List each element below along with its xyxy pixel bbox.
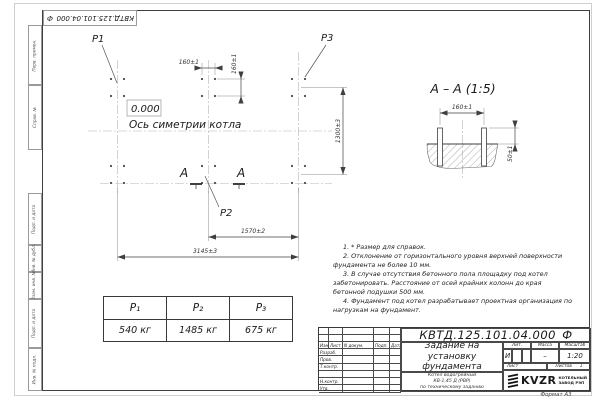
dim-total-length: 3145±3 (193, 248, 217, 255)
rev-header: Изм. (319, 342, 329, 349)
company-subtitle-line: ЗАВОД РЭП (558, 381, 587, 386)
scale-value: 1:20 (559, 349, 591, 363)
revision-table: Изм. Лист N докум. Подп. Дата Разраб. Пр… (319, 328, 401, 393)
load-table-header: P₂ (167, 297, 230, 320)
load-table-header: P₁ (104, 297, 167, 320)
role-label-razrab: Разраб. (319, 349, 343, 356)
anchor-bolt-right (482, 128, 487, 166)
dim-bolt-protrusion: 50±1 (507, 146, 514, 162)
technical-notes: 1. * Размер для справок. 2. Отклонение о… (333, 243, 574, 315)
section-letter-left: А (179, 166, 188, 180)
product-line: по техническому заданию (420, 385, 484, 391)
boiler-axis-label: Ось симетрии котла (129, 119, 241, 131)
drawing-title: Задание на установку фундамента (401, 342, 503, 372)
rev-header: Дата (390, 342, 401, 349)
title-block: Изм. Лист N докум. Подп. Дата Разраб. Пр… (318, 327, 590, 391)
note-1: 1. * Размер для справок. (333, 243, 574, 252)
rev-header: N докум. (343, 342, 374, 349)
load-table-header-row: P₁ P₂ P₃ (104, 297, 293, 320)
lit-value: И (503, 349, 512, 363)
elevation-mark-value: 0.000 (131, 104, 160, 115)
role-label-utv: Утв. (319, 385, 343, 393)
company-subtitle: КОТЕЛЬНЫЙ ЗАВОД РЭП (558, 376, 587, 385)
company-cell: KVZR КОТЕЛЬНЫЙ ЗАВОД РЭП (503, 370, 591, 392)
mass-value: – (531, 349, 559, 363)
note-3: 3. В случае отсутствия бетонного пола пл… (333, 270, 574, 297)
note-2: 2. Отклонение от горизонтального уровня … (333, 252, 574, 270)
kvzr-spring-icon (507, 373, 519, 388)
drawing-title-line: Задание на (425, 342, 480, 352)
role-label-tkontr: Т.контр. (319, 364, 343, 371)
drawing-title-line: установку (428, 352, 477, 362)
drawing-sheet: КВТД.125.101.04.000 Ф Перв. примен. Спра… (0, 0, 600, 400)
load-table-value-row: 540 кг 1485 кг 675 кг (104, 320, 293, 342)
load-point-p1-label: P1 (92, 34, 104, 45)
load-table-header: P₃ (230, 297, 293, 320)
load-table: P₁ P₂ P₃ 540 кг 1485 кг 675 кг (103, 296, 293, 342)
sheets-value: 1 (580, 364, 583, 369)
role-label-nkontr: Н.контр. (319, 378, 343, 385)
sheet-label: Лист (503, 363, 547, 370)
product-description: Котел водогрейный КВ-1,45 Д (РВР) по тех… (401, 372, 503, 392)
dim-half-length: 1570±2 (241, 228, 265, 235)
scale-header: Масштаб (559, 342, 591, 349)
dim-section-bolt-spacing: 160±1 (452, 104, 472, 111)
plan-view: P1 P3 P2 0.000 Ось симетрии котла (88, 33, 347, 261)
doc-number: КВТД.125.101.04.000 Ф (401, 328, 591, 342)
lit-cell-3 (522, 349, 531, 363)
load-point-p3-label: P3 (321, 33, 333, 44)
drawing-title-line: фундамента (422, 362, 482, 372)
section-extension-lines (440, 108, 519, 144)
dim-bolt-spacing-v: 160±1 (231, 54, 238, 74)
dim-bolt-spacing-h: 160±1 (179, 59, 199, 66)
load-table-value: 675 кг (230, 320, 293, 342)
format-label: Формат А3 (521, 392, 591, 398)
lit-cell-2 (512, 349, 521, 363)
section-cut-marks (190, 184, 245, 189)
mass-header: Масса (531, 342, 559, 349)
sheets-cell: Листов 1 (547, 363, 591, 370)
dim-foundation-width: 1300±3 (335, 119, 342, 143)
section-letter-right: А (236, 166, 245, 180)
load-table-value: 1485 кг (167, 320, 230, 342)
note-4: 4. Фундамент под котел разрабатывает про… (333, 297, 574, 315)
dimension-lines (118, 68, 344, 257)
company-name: KVZR (521, 374, 556, 387)
load-table-value: 540 кг (104, 320, 167, 342)
section-view: А – А (1:5) 160±1 50±1 (427, 81, 519, 178)
lit-header: Лит. (503, 342, 531, 349)
load-point-p2-label: P2 (220, 208, 232, 219)
anchor-bolt-left (438, 128, 443, 166)
role-label-empty (319, 371, 343, 378)
extension-lines (118, 63, 348, 261)
rev-header: Подп. (374, 342, 390, 349)
company-logo: KVZR КОТЕЛЬНЫЙ ЗАВОД РЭП (507, 373, 587, 388)
section-title: А – А (1:5) (429, 81, 495, 96)
rev-header: Лист (329, 342, 343, 349)
role-label-prov: Пров. (319, 356, 343, 363)
sheets-label: Листов (555, 364, 571, 369)
